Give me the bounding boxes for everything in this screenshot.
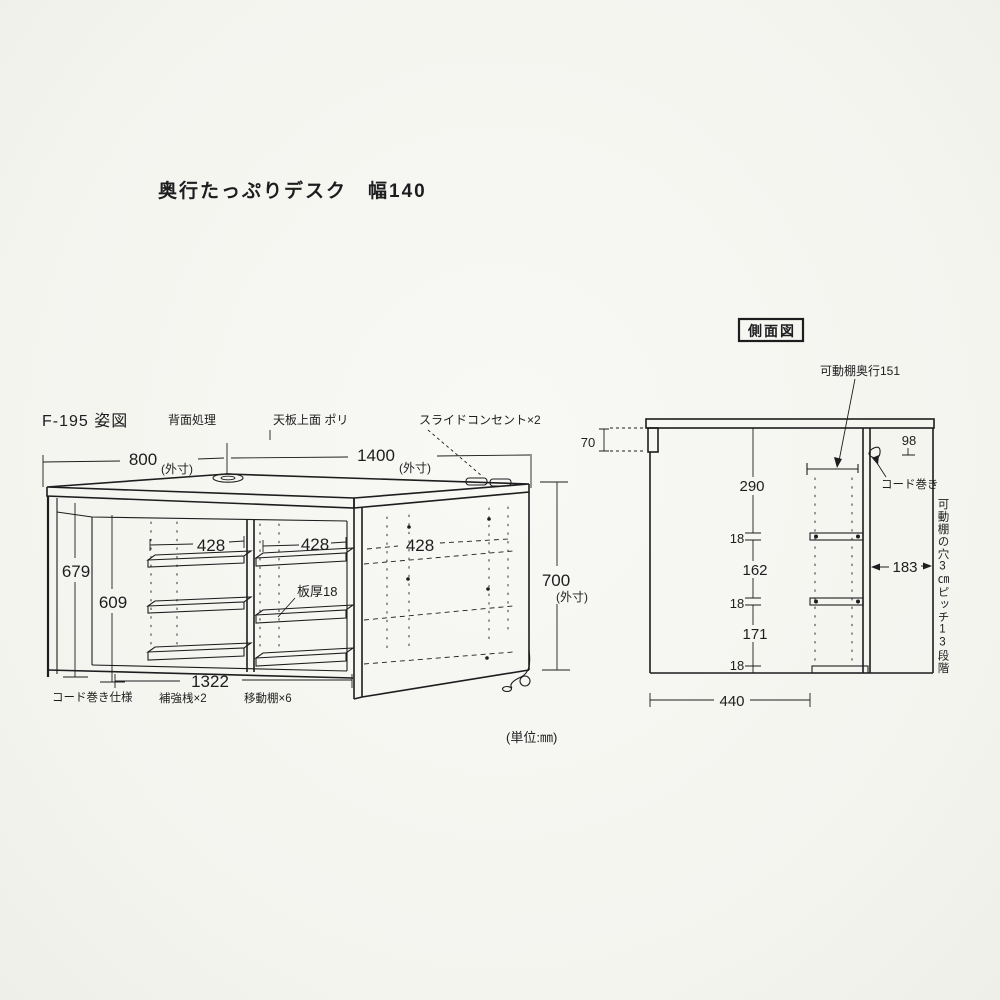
movable-shelves-label: 移動棚×6: [244, 691, 292, 705]
dim-183: 183: [892, 559, 917, 576]
dim-depth-suffix: (外寸): [161, 462, 193, 476]
dim-18-mid: 18: [730, 596, 744, 611]
dim-290: 290: [739, 478, 764, 495]
side-view: 側面図: [581, 319, 939, 710]
board-thickness-label: 板厚18: [297, 584, 337, 599]
unit-note: (単位:㎜): [506, 730, 557, 745]
slide-outlet-label: スライドコンセント×2: [419, 413, 541, 427]
scanned-drawing-page: 奥行たっぷりデスク 幅140 (単位:㎜): [0, 0, 1000, 1000]
dim-70: 70: [581, 435, 595, 450]
dim-width-1400: 1400: [357, 446, 395, 465]
shelf-pitch-note: 可動棚の穴3㎝ピッチ13段階: [936, 498, 948, 675]
dim-width-suffix: (外寸): [399, 461, 431, 475]
figure-label: F-195 姿図: [42, 412, 128, 430]
dim-shelf-428-center: 428: [301, 535, 329, 554]
dim-shelf-428-left: 428: [197, 536, 225, 555]
back-treatment-label: 背面処理: [168, 413, 216, 427]
dim-inner-height-679: 679: [62, 562, 90, 581]
dim-162: 162: [742, 562, 767, 579]
side-panel-hidden-lines: [364, 507, 513, 664]
dim-inner-height-609: 609: [99, 593, 127, 612]
dim-height-700: 700: [542, 571, 570, 590]
side-view-body-linework: [646, 419, 934, 673]
top-surface-label: 天板上面 ポリ: [273, 413, 348, 427]
cable-grommet: [213, 474, 243, 482]
dim-depth-800: 800: [129, 450, 157, 469]
dim-440: 440: [719, 693, 744, 710]
side-view-title: 側面図: [747, 323, 796, 339]
dim-98: 98: [902, 433, 916, 448]
shelf-depth-label: 可動棚奥行151: [820, 363, 900, 378]
dim-18-bottom: 18: [730, 658, 744, 673]
dim-inner-width-1322: 1322: [191, 672, 229, 691]
dim-171: 171: [742, 626, 767, 643]
dim-height-suffix: (外寸): [556, 590, 588, 604]
dim-18-top: 18: [730, 531, 744, 546]
front-view: F-195 姿図 背面処理 天板上面 ポリ スライドコンセント×2 800 (外…: [42, 412, 588, 705]
dim-shelf-428-side: 428: [406, 536, 434, 555]
cord-spec-label: コード巻き仕様: [52, 690, 133, 704]
drawing-canvas: 奥行たっぷりデスク 幅140 (単位:㎜): [0, 0, 1000, 1000]
page-title: 奥行たっぷりデスク 幅140: [158, 179, 427, 202]
reinforcement-label: 補強桟×2: [159, 691, 207, 705]
front-view-dimension-lines: [43, 430, 570, 688]
cord-winder-label: コード巻き: [881, 478, 939, 491]
desk-top-linework: [47, 474, 529, 508]
